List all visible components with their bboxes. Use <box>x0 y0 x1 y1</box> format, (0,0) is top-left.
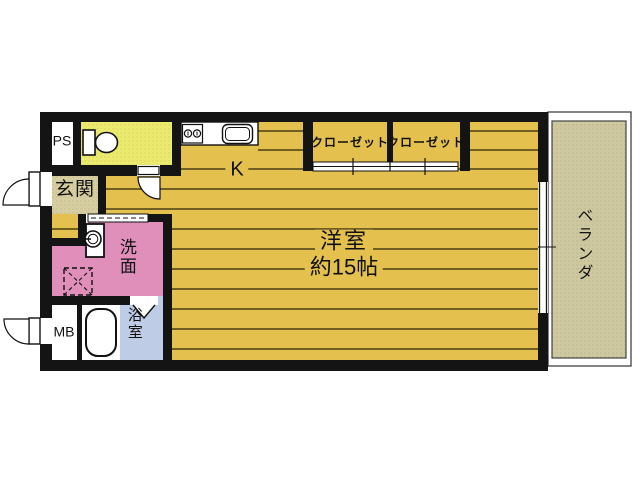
main-room-size-label: 約15帖 <box>305 255 383 278</box>
floor-plan: PS 玄関 洗面 MB 浴室 K クローゼット クローゼット 洋室 約15帖 ベ… <box>0 0 640 480</box>
washroom-sliding-door <box>88 214 148 222</box>
entrance-label: 玄関 <box>55 180 95 200</box>
stove-icon <box>183 125 203 144</box>
closet-2-label: クローゼット <box>387 137 465 150</box>
main-room-label: 洋室 <box>315 229 373 252</box>
toilet-icon <box>83 130 118 155</box>
washing-machine-icon <box>84 224 104 257</box>
sink-icon <box>223 125 253 144</box>
bathtub-icon <box>86 309 116 356</box>
bathroom-label: 浴室 <box>126 307 142 341</box>
kitchen-label: K <box>225 160 248 181</box>
closet-1-label: クローゼット <box>311 137 389 150</box>
door-swing-icon <box>4 319 29 344</box>
veranda-label: ベランダ <box>574 207 591 283</box>
washroom-label: 洗面 <box>117 238 135 276</box>
ps-label: PS <box>53 134 72 149</box>
meter-box-label: MB <box>54 325 75 340</box>
door-swing-icon <box>3 179 29 205</box>
kitchen-counter <box>181 122 258 145</box>
meter-box-door <box>4 318 52 344</box>
entrance-door <box>3 172 52 206</box>
